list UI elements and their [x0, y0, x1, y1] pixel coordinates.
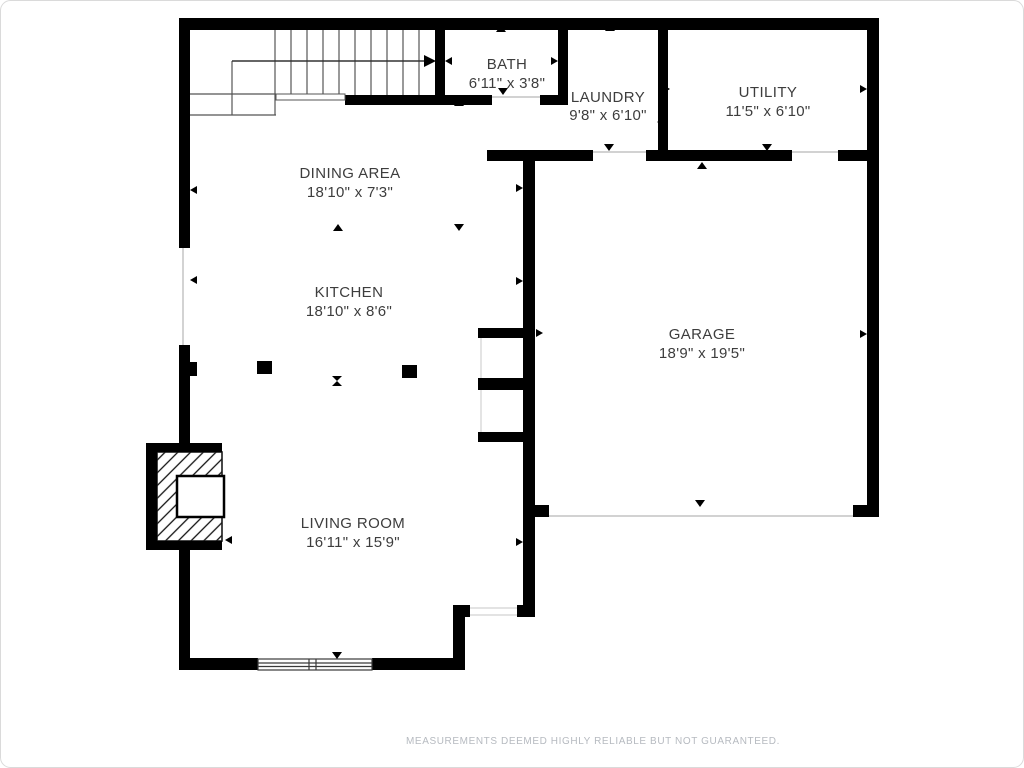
wall-segment-stair-right [435, 18, 445, 95]
wall-segment-garage-top-a [646, 150, 792, 161]
room-name: KITCHEN [315, 284, 384, 301]
kitchen-post-1 [257, 361, 272, 374]
room-dimensions: 6'11" x 3'8" [469, 75, 545, 92]
window-frame [258, 659, 372, 670]
wall-segment-left-mid [179, 345, 190, 443]
wall-stub-garage-bl [535, 505, 549, 517]
dimension-arrow-icon [762, 144, 772, 151]
wall-closet-bar-2 [478, 378, 535, 390]
stair-lower-band [276, 94, 345, 100]
room-dimensions: 18'10" x 8'6" [306, 303, 392, 320]
room-label-living: LIVING ROOM 16'11" x 15'9" [301, 515, 405, 551]
wall-segment-top [179, 18, 877, 30]
room-name: DINING AREA [299, 165, 400, 182]
room-label-kitchen: KITCHEN 18'10" x 8'6" [306, 284, 392, 320]
kitchen-post-2 [402, 365, 417, 378]
room-label-bath: BATH 6'11" x 3'8" [469, 56, 545, 92]
room-name: LIVING ROOM [301, 515, 405, 532]
wall-segment-kitchen-top [487, 150, 593, 161]
dimension-arrow-icon [551, 57, 558, 65]
dimension-arrow-icon [333, 224, 343, 231]
wall-closet-bar-3 [478, 432, 535, 442]
room-dimensions: 18'10" x 7'3" [307, 184, 393, 201]
dimension-arrow-icon [190, 276, 197, 284]
room-name: LAUNDRY [571, 89, 645, 106]
dimension-arrow-icon [332, 652, 342, 659]
wall-segment-bath-right [558, 18, 568, 102]
room-label-garage: GARAGE 18'9" x 19'5" [659, 326, 745, 362]
dimension-arrow-icon [190, 186, 197, 194]
wall-segment-left-lower [179, 550, 190, 658]
dimension-arrow-icon [860, 330, 867, 338]
wall-segment-right [867, 18, 879, 517]
dimension-arrow-icon [516, 538, 523, 546]
room-dimensions: 9'8" x 6'10" [569, 107, 647, 124]
room-name: BATH [487, 56, 528, 73]
wall-closet-bar-1 [478, 328, 535, 338]
room-label-utility: UTILITY 11'5" x 6'10" [725, 84, 810, 120]
wall-segment-bottom-left [179, 658, 258, 670]
dimension-arrow-icon [225, 536, 232, 544]
dimension-arrow-icon [332, 376, 342, 381]
dimension-arrow-icon [332, 381, 342, 386]
wall-nub-left [179, 362, 197, 376]
wall-corner-garage-br [853, 505, 879, 517]
bottom-window [258, 659, 372, 670]
firebox [177, 476, 224, 517]
fireplace-left [146, 443, 157, 550]
fireplace-top [146, 443, 222, 452]
room-dimensions: 16'11" x 15'9" [306, 534, 400, 551]
wall-stub-backdoor-left [453, 605, 470, 617]
room-labels: BATH 6'11" x 3'8" LAUNDRY 9'8" x 6'10" U… [299, 56, 810, 551]
dimension-arrow-icon [445, 57, 452, 65]
fireplace [146, 443, 224, 550]
room-label-laundry: LAUNDRY 9'8" x 6'10" [569, 89, 647, 124]
dimension-arrow-icon [536, 329, 543, 337]
wall-segment-bottom-mid [372, 658, 465, 670]
room-dimensions: 11'5" x 6'10" [725, 103, 810, 120]
wall-segment-bath-bottom-a [345, 95, 492, 105]
room-label-dining: DINING AREA 18'10" x 7'3" [299, 165, 400, 201]
disclaimer-text: MEASUREMENTS DEEMED HIGHLY RELIABLE BUT … [406, 736, 780, 747]
dimension-arrow-icon [516, 277, 523, 285]
dimension-arrow-icon [516, 184, 523, 192]
dimension-arrow-icon [695, 500, 705, 507]
stair-direction-arrow-icon [424, 55, 436, 67]
room-name: UTILITY [739, 84, 798, 101]
floor-plan-page: BATH 6'11" x 3'8" LAUNDRY 9'8" x 6'10" U… [0, 0, 1024, 768]
dimension-arrow-icon [454, 224, 464, 231]
dimension-arrow-icon [604, 144, 614, 151]
room-name: GARAGE [669, 326, 736, 343]
dimension-arrow-icon [860, 85, 867, 93]
wall-segment-left-upper [179, 18, 190, 248]
fireplace-bottom [146, 541, 222, 550]
floor-plan-canvas: BATH 6'11" x 3'8" LAUNDRY 9'8" x 6'10" U… [0, 0, 1024, 768]
room-dimensions: 18'9" x 19'5" [659, 345, 745, 362]
dimension-arrow-icon [697, 162, 707, 169]
